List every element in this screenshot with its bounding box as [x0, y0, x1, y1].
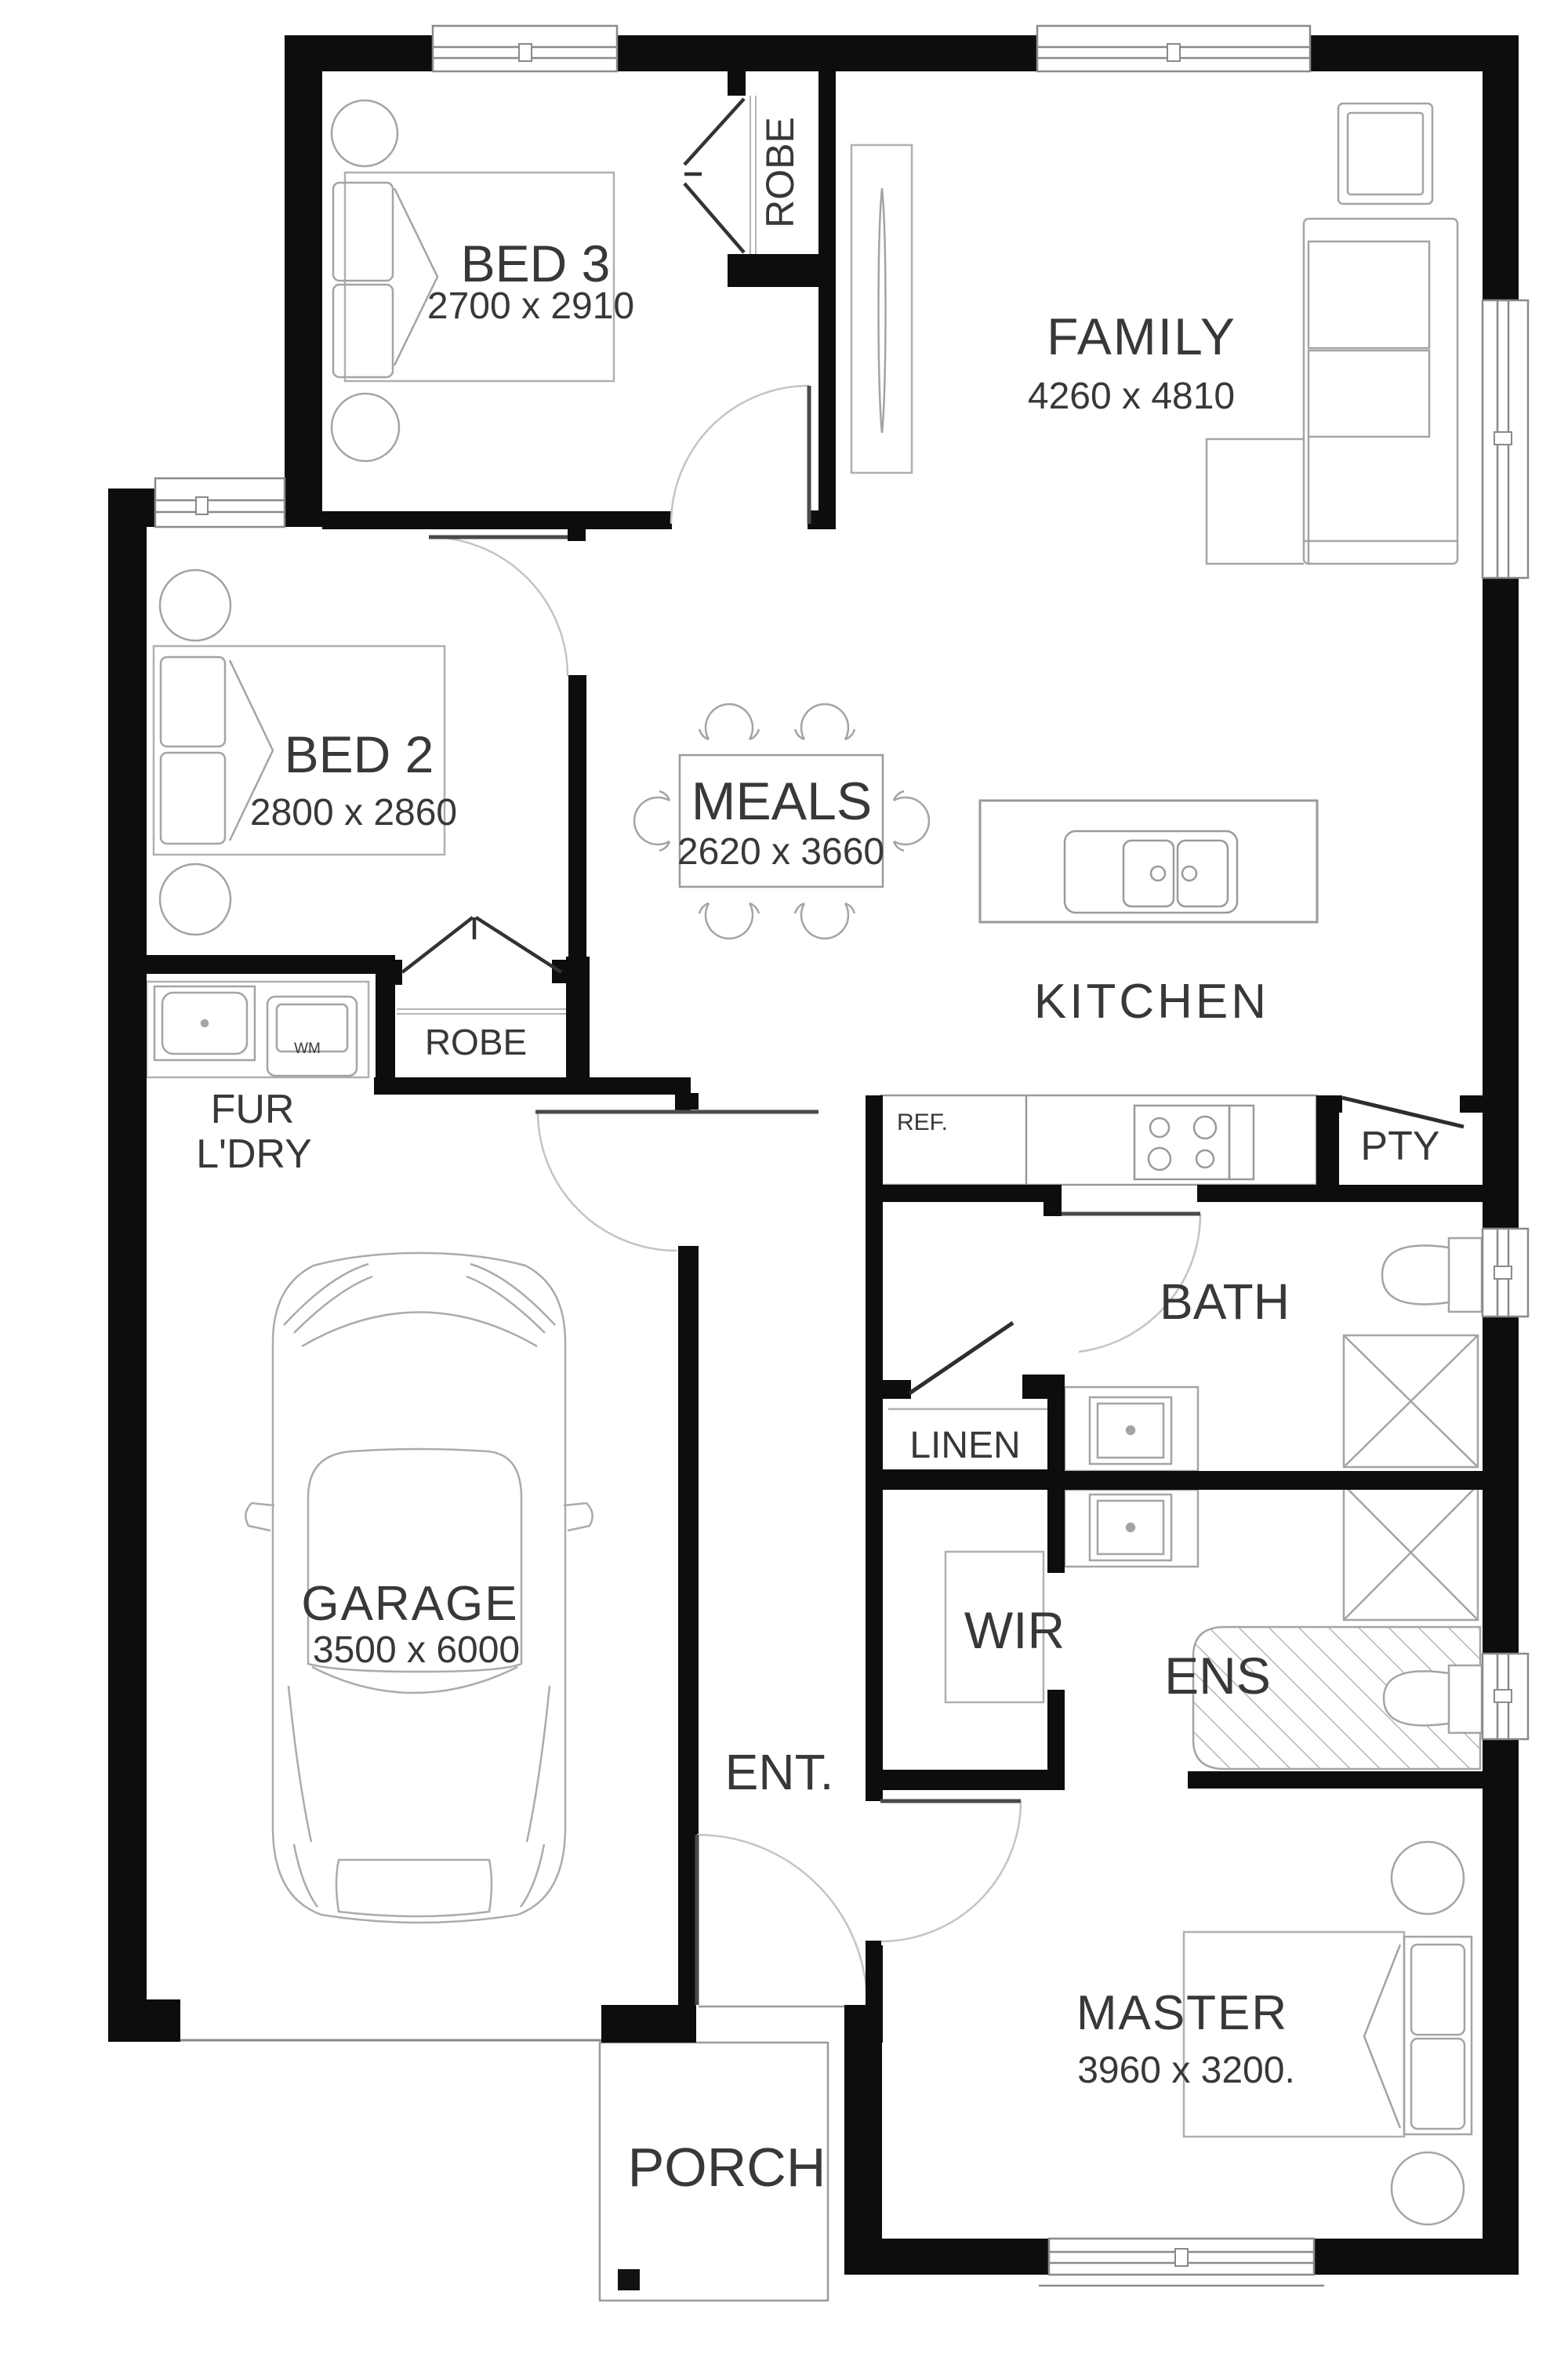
svg-text:BED 3: BED 3: [461, 234, 611, 292]
svg-text:ROBE: ROBE: [758, 117, 802, 228]
svg-text:FUR: FUR: [211, 1087, 295, 1132]
svg-text:ENT.: ENT.: [725, 1744, 834, 1800]
svg-text:3500 x 6000: 3500 x 6000: [313, 1629, 520, 1671]
svg-text:2800 x 2860: 2800 x 2860: [250, 792, 457, 833]
svg-text:3960 x 3200.: 3960 x 3200.: [1077, 2050, 1295, 2091]
svg-text:2700 x 2910: 2700 x 2910: [427, 285, 634, 327]
svg-text:2620 x 3660: 2620 x 3660: [677, 831, 884, 873]
svg-text:WIR: WIR: [964, 1601, 1065, 1659]
svg-text:WM: WM: [294, 1040, 321, 1057]
svg-text:REF.: REF.: [897, 1109, 948, 1135]
svg-text:PTY: PTY: [1360, 1124, 1439, 1169]
svg-text:L'DRY: L'DRY: [196, 1131, 312, 1177]
svg-text:FAMILY: FAMILY: [1047, 307, 1236, 365]
svg-text:LINEN: LINEN: [909, 1425, 1020, 1466]
svg-text:KITCHEN: KITCHEN: [1034, 975, 1269, 1029]
svg-text:4260 x 4810: 4260 x 4810: [1028, 376, 1235, 417]
svg-text:MASTER: MASTER: [1076, 1986, 1288, 2040]
svg-text:MEALS: MEALS: [691, 772, 873, 831]
svg-text:BATH: BATH: [1160, 1273, 1290, 1330]
svg-text:GARAGE: GARAGE: [301, 1577, 518, 1631]
svg-text:BED 2: BED 2: [285, 725, 434, 783]
svg-text:ROBE: ROBE: [425, 1022, 527, 1062]
svg-text:ENS: ENS: [1164, 1647, 1271, 1705]
svg-text:PORCH: PORCH: [628, 2137, 826, 2198]
